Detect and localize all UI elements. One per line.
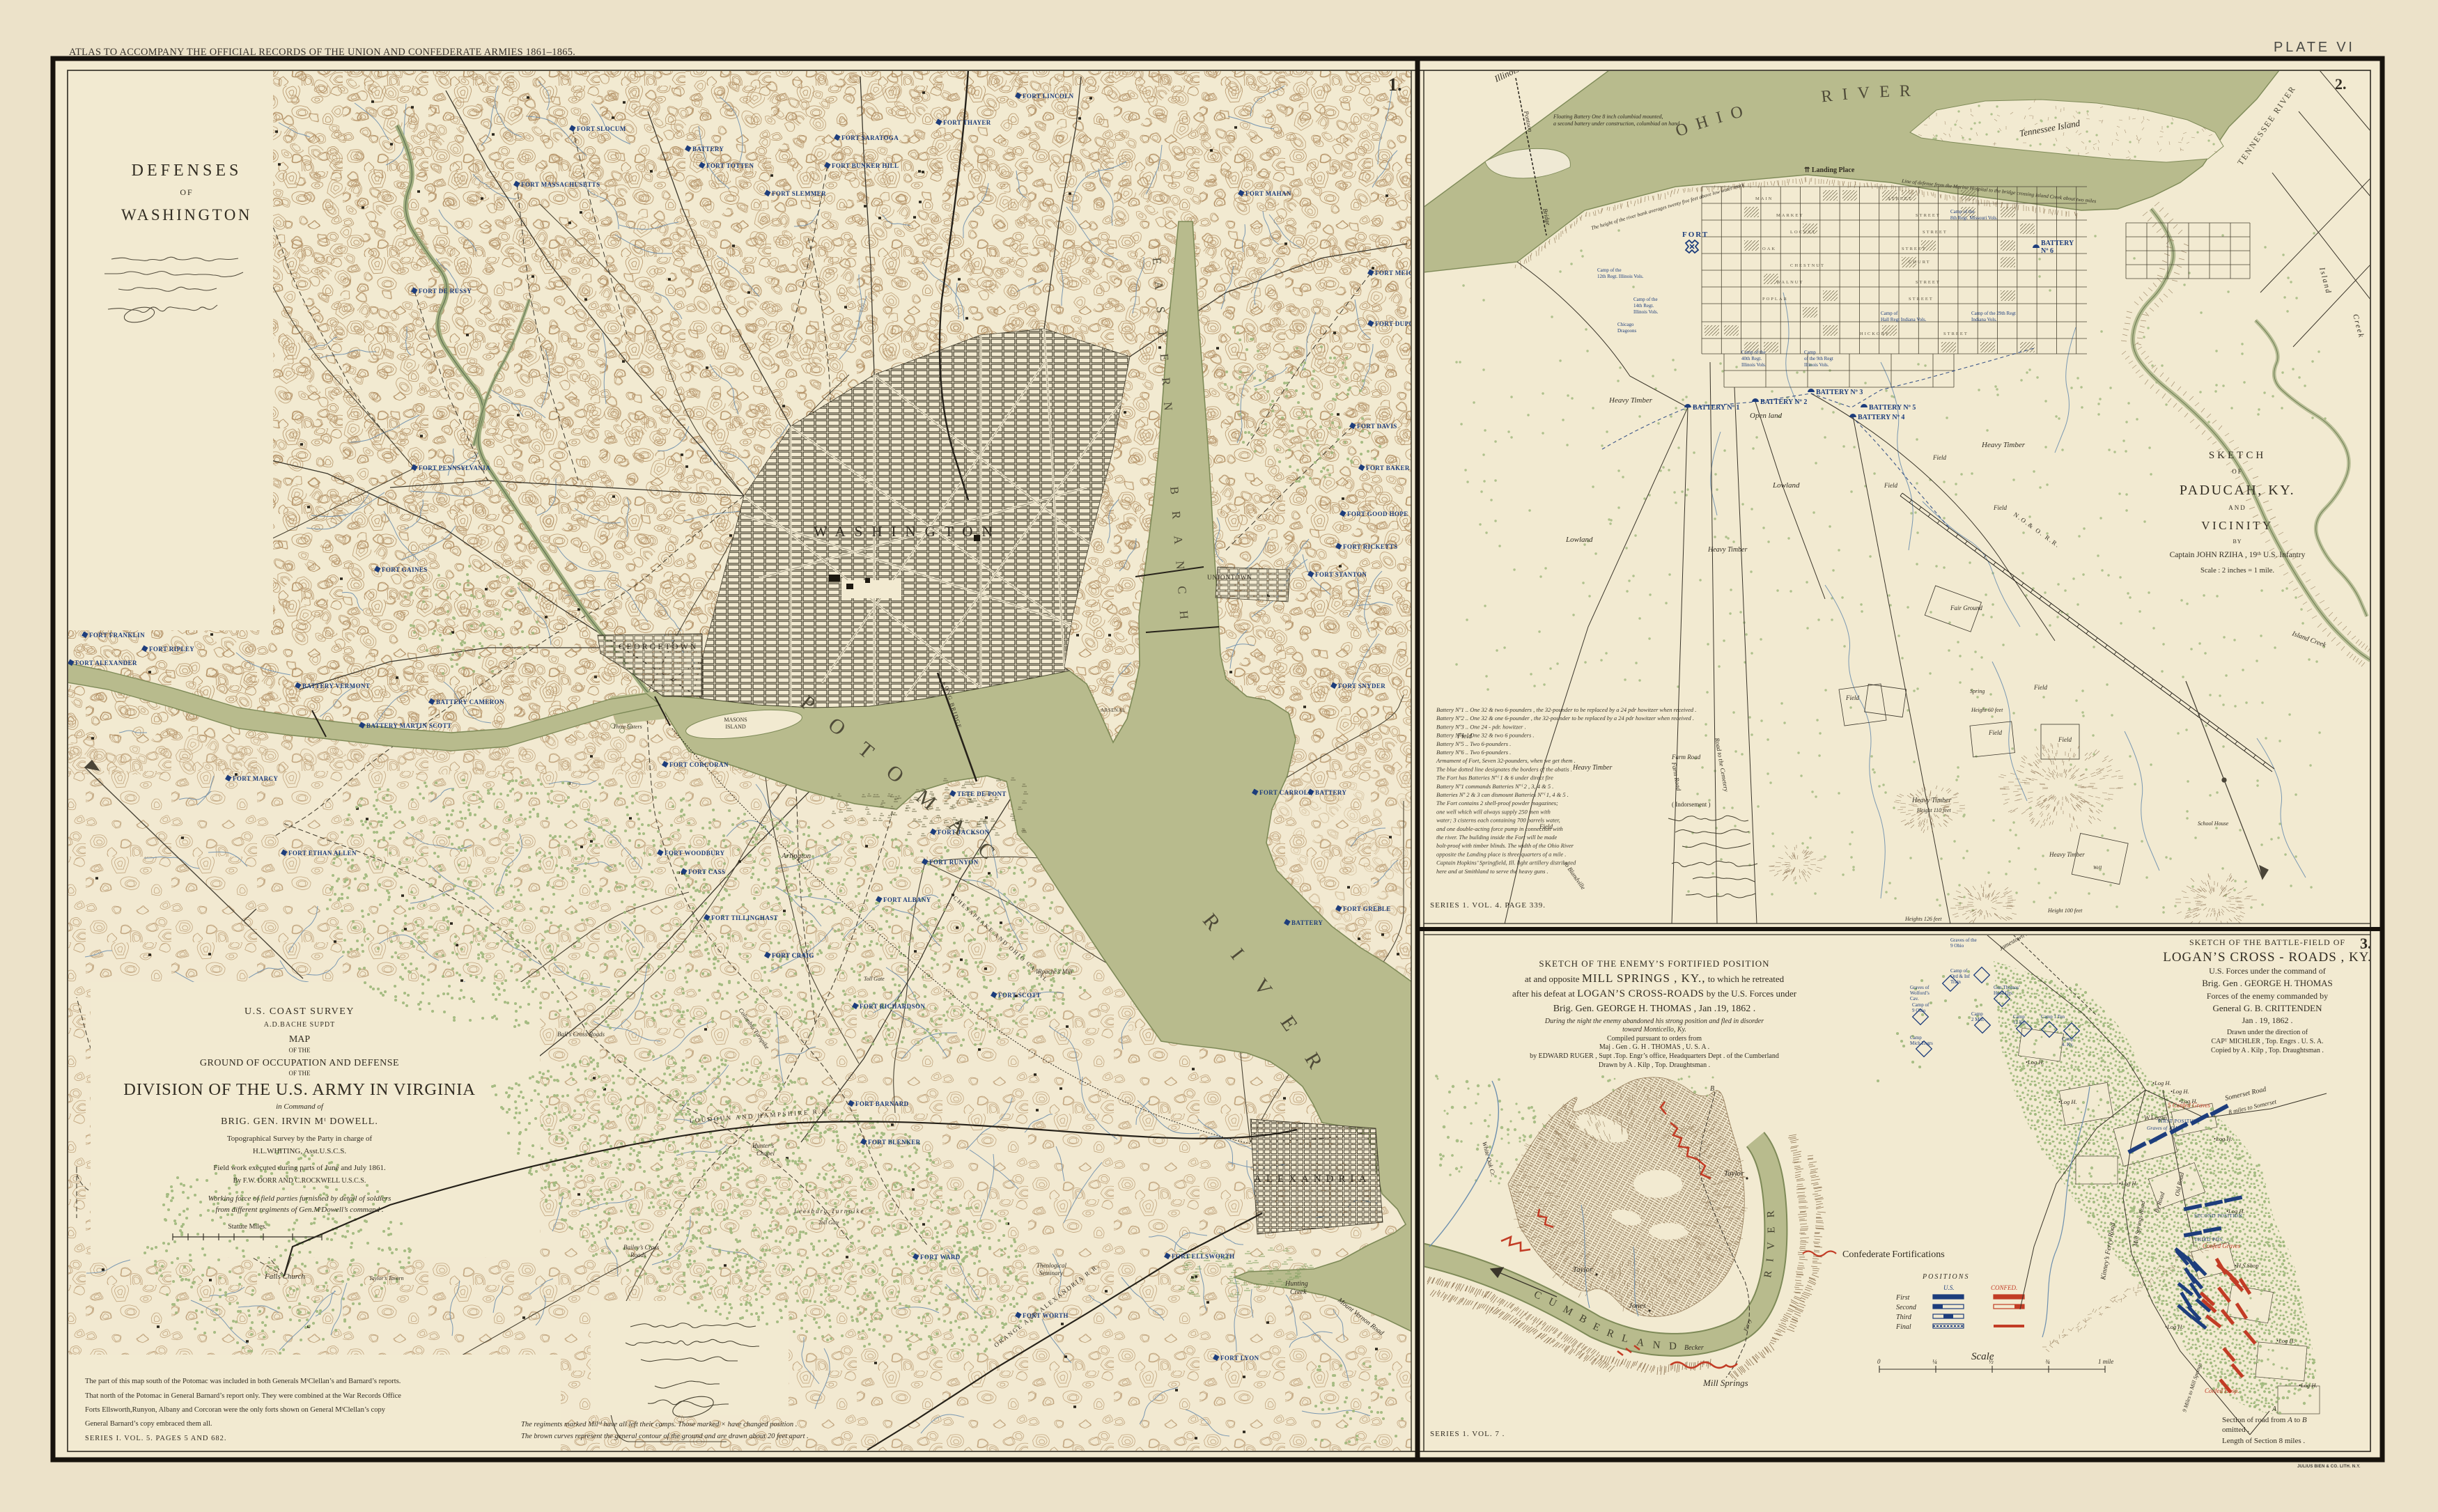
svg-text:Height 110 feet: Height 110 feet bbox=[1916, 807, 1952, 813]
svg-text:FORT DE RUSSY: FORT DE RUSSY bbox=[419, 288, 472, 295]
svg-text:A: A bbox=[2272, 1405, 2277, 1413]
svg-text:Camp 1 Ten: Camp 1 Ten bbox=[2041, 1014, 2065, 1020]
svg-text:Ball’s Cross Roads: Ball’s Cross Roads bbox=[557, 1031, 605, 1038]
svg-text:By F.W. DORR AND C.ROCKWELL U.: By F.W. DORR AND C.ROCKWELL U.S.C.S. bbox=[233, 1177, 366, 1185]
svg-text:5 Confed Graves: 5 Confed Graves bbox=[2168, 1102, 2210, 1109]
svg-text:from different regiments of Ge: from different regiments of Gen.MᵗDowell… bbox=[215, 1206, 383, 1214]
svg-text:FORT RICKETTS: FORT RICKETTS bbox=[1343, 543, 1398, 550]
svg-text:First: First bbox=[1895, 1294, 1910, 1302]
svg-text:Camp of: Camp of bbox=[1881, 311, 1898, 316]
svg-text:FORT BUNKER HILL: FORT BUNKER HILL bbox=[832, 162, 899, 169]
svg-text:Field: Field bbox=[1845, 694, 1859, 701]
svg-text:FORT THAYER: FORT THAYER bbox=[943, 119, 991, 126]
svg-text:Battery Nº4 .. One 32 & two 6: Battery Nº4 .. One 32 & two 6 pounders . bbox=[1436, 732, 1535, 739]
svg-text:FORT ELLSWORTH: FORT ELLSWORTH bbox=[1172, 1253, 1235, 1260]
svg-text:Third: Third bbox=[1896, 1314, 1912, 1321]
svg-text:COURT: COURT bbox=[1909, 260, 1931, 265]
svg-text:SKETCH: SKETCH bbox=[2209, 450, 2266, 461]
svg-text:40th Regt.: 40th Regt. bbox=[1741, 356, 1762, 361]
svg-text:Battery Nº3 .. One 24 - pdr.: Battery Nº3 .. One 24 - pdr. howitzer . bbox=[1436, 723, 1526, 730]
svg-text:Copied by A . Kilp , Top. Drau: Copied by A . Kilp , Top. Draughtsman . bbox=[2211, 1047, 2324, 1054]
svg-text:BATTERY: BATTERY bbox=[1315, 789, 1346, 796]
svg-text:Heights 126 feet: Heights 126 feet bbox=[1904, 916, 1942, 922]
svg-text:•Log H.: •Log H. bbox=[2214, 1135, 2233, 1142]
svg-text:During the night the enemy aba: During the night the enemy abandoned his… bbox=[1544, 1018, 1764, 1025]
svg-text:Jones: Jones bbox=[1629, 1302, 1646, 1310]
svg-text:Arlington: Arlington bbox=[781, 852, 812, 860]
svg-text:DEFENSES: DEFENSES bbox=[132, 162, 242, 180]
svg-text:Wolford’s: Wolford’s bbox=[1910, 990, 1930, 996]
svg-text:ARSENAL: ARSENAL bbox=[1101, 708, 1126, 713]
svg-text:Batteries Nº 2 & 3 can dismoun: Batteries Nº 2 & 3 can dismount Batterie… bbox=[1436, 791, 1569, 798]
svg-text:BATTERY MARTIN SCOTT: BATTERY MARTIN SCOTT bbox=[366, 722, 451, 729]
svg-text:TETE DE PONT: TETE DE PONT bbox=[957, 790, 1007, 797]
svg-text:Heavy Timber: Heavy Timber bbox=[1608, 396, 1653, 405]
svg-text:LOGAN’S CROSS - ROADS , KY.: LOGAN’S CROSS - ROADS , KY. bbox=[2163, 950, 2372, 965]
svg-text:Becker: Becker bbox=[1684, 1344, 1704, 1352]
svg-text:Farm Road: Farm Road bbox=[1671, 754, 1701, 761]
svg-text:The Fort has Batteries Nº⁽ 1 &: The Fort has Batteries Nº⁽ 1 & 6 under d… bbox=[1436, 774, 1553, 781]
svg-text:Section of road from A to B: Section of road from A to B bbox=[2222, 1416, 2307, 1424]
svg-text:Camp of the 29th Regt: Camp of the 29th Regt bbox=[1971, 311, 2016, 316]
svg-text:BATTERY Nº 1: BATTERY Nº 1 bbox=[1693, 404, 1739, 412]
svg-text:⇈ Landing Place: ⇈ Landing Place bbox=[1804, 166, 1855, 174]
svg-text:FORT LINCOLN: FORT LINCOLN bbox=[1023, 93, 1074, 100]
svg-text:Battery Nº1 .. One 32 & two 6-: Battery Nº1 .. One 32 & two 6-pounders ,… bbox=[1436, 706, 1696, 713]
svg-text:Confed Hosp.: Confed Hosp. bbox=[2205, 1387, 2239, 1394]
svg-text:GROUND OF OCCUPATION AND DEFEN: GROUND OF OCCUPATION AND DEFENSE bbox=[200, 1058, 399, 1068]
svg-text:Working force of field parties: Working force of field parties furnished… bbox=[208, 1194, 391, 1203]
svg-text:4. Ky.: 4. Ky. bbox=[2062, 1042, 2074, 1047]
svg-text:Compiled pursuant to orders fr: Compiled pursuant to orders from bbox=[1607, 1035, 1702, 1043]
svg-text:by EDWARD RUGER , Supt .Top. E: by EDWARD RUGER , Supt .Top. Engr’s offi… bbox=[1530, 1052, 1779, 1060]
svg-text:Jan . 19, 1862 .: Jan . 19, 1862 . bbox=[2242, 1015, 2293, 1025]
svg-text:FORT ALEXANDER: FORT ALEXANDER bbox=[75, 660, 137, 667]
svg-text:FORT ALBANY: FORT ALBANY bbox=[883, 896, 931, 903]
svg-text:Toll Gate: Toll Gate bbox=[864, 976, 885, 982]
svg-text:0: 0 bbox=[1877, 1358, 1881, 1365]
svg-text:U.S. COAST SURVEY: U.S. COAST SURVEY bbox=[244, 1006, 355, 1017]
svg-text:Camp of: Camp of bbox=[1912, 1002, 1930, 1008]
svg-text:SKETCH OF THE ENEMY’S FORTIFIE: SKETCH OF THE ENEMY’S FORTIFIED POSITION bbox=[1539, 958, 1769, 969]
svg-text:THIRD POS.: THIRD POS. bbox=[2194, 1237, 2224, 1242]
svg-text:Heavy Timber: Heavy Timber bbox=[1572, 764, 1612, 772]
svg-text:Graves of: Graves of bbox=[1910, 985, 1930, 990]
svg-text:BATTERY Nº 5: BATTERY Nº 5 bbox=[1869, 404, 1916, 412]
svg-text:The part of this map south of: The part of this map south of the Potoma… bbox=[85, 1378, 401, 1385]
svg-text:¾: ¾ bbox=[2045, 1358, 2050, 1365]
svg-text:SKETCH OF THE BATTLE-FIELD OF: SKETCH OF THE BATTLE-FIELD OF bbox=[2189, 937, 2345, 947]
svg-text:POPLAR: POPLAR bbox=[1762, 297, 1788, 302]
svg-text:•Log H.: •Log H. bbox=[2165, 1323, 2184, 1330]
svg-text:•Log H.: •Log H. bbox=[2026, 1059, 2044, 1066]
svg-text:FORT BARNARD: FORT BARNARD bbox=[855, 1100, 909, 1107]
svg-text:POSITIONS: POSITIONS bbox=[1922, 1273, 1969, 1281]
svg-text:Brig. Gen . GEORGE H. THOMAS: Brig. Gen . GEORGE H. THOMAS bbox=[2202, 978, 2333, 988]
svg-text:FORT TOTTEN: FORT TOTTEN bbox=[706, 162, 754, 169]
svg-text:STREET: STREET bbox=[1923, 230, 1948, 235]
svg-text:Fair Ground: Fair Ground bbox=[1950, 605, 1982, 611]
svg-text:Confed Graves: Confed Graves bbox=[2203, 1242, 2241, 1249]
svg-text:UNIONTOWN: UNIONTOWN bbox=[1207, 574, 1252, 581]
svg-text:BATTERY CAMERON: BATTERY CAMERON bbox=[436, 699, 504, 706]
svg-text:FORT RICHARDSON: FORT RICHARDSON bbox=[860, 1003, 925, 1010]
svg-text:WASHINGTON: WASHINGTON bbox=[121, 206, 252, 224]
svg-text:FORT CRAIG: FORT CRAIG bbox=[772, 952, 814, 959]
svg-text:Falls Church: Falls Church bbox=[264, 1272, 305, 1281]
svg-text:Theological: Theological bbox=[1036, 1262, 1066, 1269]
svg-text:Field: Field bbox=[1932, 454, 1946, 461]
svg-text:BRIG. GEN. IRVIN M⁢ᵗ DOWELL.: BRIG. GEN. IRVIN M⁢ᵗ DOWELL. bbox=[221, 1116, 378, 1127]
svg-text:Ord & Inf: Ord & Inf bbox=[1950, 974, 1971, 979]
svg-text:FORT FRANKLIN: FORT FRANKLIN bbox=[89, 632, 145, 639]
svg-text:Taylor: Taylor bbox=[1573, 1265, 1593, 1274]
svg-text:Well: Well bbox=[2093, 865, 2102, 871]
svg-text:SERIES I. VOL. 5. PAGES 5 AND: SERIES I. VOL. 5. PAGES 5 AND 682. bbox=[85, 1435, 226, 1442]
svg-text:MASONS: MASONS bbox=[724, 717, 747, 723]
svg-text:OAK: OAK bbox=[1762, 247, 1776, 251]
svg-text:FORT BLENKER: FORT BLENKER bbox=[868, 1139, 921, 1146]
svg-text:and one double-acting force pu: and one double-acting force pump in conn… bbox=[1436, 825, 1563, 832]
svg-text:omitted .: omitted . bbox=[2222, 1426, 2249, 1434]
svg-text:FORT GOOD HOPE: FORT GOOD HOPE bbox=[1347, 511, 1408, 517]
svg-text:FORT DAVIS: FORT DAVIS bbox=[1357, 423, 1397, 430]
svg-text:Battery Nº5 .. Two 6-pounders: Battery Nº5 .. Two 6-pounders . bbox=[1436, 740, 1511, 747]
svg-text:FORT SLEMMER: FORT SLEMMER bbox=[772, 190, 826, 197]
svg-text:Dragoons: Dragoons bbox=[1617, 328, 1636, 334]
svg-text:CAPᵀ MICHLER , Top. Engrs . U.: CAPᵀ MICHLER , Top. Engrs . U. S. A. bbox=[2211, 1038, 2323, 1045]
svg-text:one well which will always sup: one well which will always supply 250 me… bbox=[1436, 808, 1551, 815]
svg-text:OF: OF bbox=[2232, 468, 2243, 475]
svg-text:PLATE VI: PLATE VI bbox=[2274, 40, 2355, 55]
svg-text:AND: AND bbox=[2228, 504, 2246, 511]
svg-text:PADUCAH, KY.: PADUCAH, KY. bbox=[2180, 483, 2295, 498]
svg-text:FORT BAKER: FORT BAKER bbox=[1366, 465, 1410, 471]
svg-text:Camp of the: Camp of the bbox=[1950, 209, 1975, 215]
svg-text:GEORGETOWN: GEORGETOWN bbox=[619, 641, 698, 651]
svg-text:Train: Train bbox=[1950, 979, 1961, 985]
svg-text:Forts Ellsworth,Runyon, Albany: Forts Ellsworth,Runyon, Albany and Corco… bbox=[85, 1406, 386, 1414]
svg-text:Graves of 10 Ind.: Graves of 10 Ind. bbox=[2147, 1125, 2184, 1131]
svg-text:Heavy Timber: Heavy Timber bbox=[2049, 851, 2085, 858]
svg-text:BY: BY bbox=[2233, 538, 2242, 545]
svg-text:ISLAND: ISLAND bbox=[725, 724, 746, 730]
svg-text:Chicago: Chicago bbox=[1617, 322, 1634, 327]
svg-text:MAP: MAP bbox=[289, 1034, 311, 1045]
svg-text:Camp: Camp bbox=[1971, 1011, 1983, 1017]
svg-text:1 mile: 1 mile bbox=[2098, 1358, 2113, 1365]
svg-text:Heavy Timber: Heavy Timber bbox=[1981, 441, 2026, 449]
svg-text:Hall Regt Indiana Vols.: Hall Regt Indiana Vols. bbox=[1881, 317, 1927, 322]
svg-text:School House: School House bbox=[2198, 820, 2229, 827]
svg-text:Spring: Spring bbox=[1970, 688, 1985, 694]
svg-text:VICINITY: VICINITY bbox=[2201, 519, 2274, 532]
svg-text:2.: 2. bbox=[2335, 75, 2347, 93]
svg-text:Leesburg Turnpike: Leesburg Turnpike bbox=[793, 1208, 864, 1215]
svg-text:BATTERY Nº 3: BATTERY Nº 3 bbox=[1816, 389, 1863, 396]
svg-text:FORT CASS: FORT CASS bbox=[688, 868, 725, 875]
svg-text:BATTERY: BATTERY bbox=[2041, 240, 2074, 247]
svg-text:Battery Nº1 commands Batteries: Battery Nº1 commands Batteries Nº⁽ 2 , 3… bbox=[1436, 783, 1553, 790]
svg-text:½: ½ bbox=[1989, 1358, 1994, 1365]
svg-text:Open land: Open land bbox=[1750, 412, 1783, 420]
svg-text:FORT RUNYON: FORT RUNYON bbox=[929, 859, 979, 866]
svg-text:14th Regt.: 14th Regt. bbox=[1633, 303, 1654, 309]
svg-text:Lowland: Lowland bbox=[1565, 536, 1593, 544]
svg-text:H.L.WHITING, Asst.U.S.C.S.: H.L.WHITING, Asst.U.S.C.S. bbox=[253, 1147, 346, 1155]
svg-text:FIRST POSITION: FIRST POSITION bbox=[2158, 1119, 2200, 1124]
svg-text:Illinois Vols.: Illinois Vols. bbox=[1741, 362, 1767, 368]
svg-text:FORT TILLINGHAST: FORT TILLINGHAST bbox=[711, 914, 778, 921]
svg-text:BATTERY: BATTERY bbox=[692, 146, 724, 153]
svg-text:•Log H.: •Log H. bbox=[2171, 1088, 2189, 1095]
svg-text:Topographical Survey by the Pa: Topographical Survey by the Party in cha… bbox=[227, 1135, 373, 1143]
svg-text:Captain Hopkins’ Springfield,: Captain Hopkins’ Springfield, Ill. light… bbox=[1436, 859, 1576, 866]
svg-text:General G. B. CRITTENDEN: General G. B. CRITTENDEN bbox=[2212, 1003, 2322, 1013]
svg-text:Length of Section 8 miles .: Length of Section 8 miles . bbox=[2222, 1437, 2305, 1445]
svg-text:FORT CORCORAN: FORT CORCORAN bbox=[669, 761, 729, 768]
svg-text:WASHINGTON: WASHINGTON bbox=[814, 523, 1002, 540]
svg-text:Floating Battery One 8 inch c: Floating Battery One 8 inch columbiad mo… bbox=[1553, 114, 1663, 120]
svg-text:OF: OF bbox=[180, 187, 193, 197]
svg-text:Bailey’s Cross: Bailey’s Cross bbox=[623, 1244, 660, 1251]
svg-text:Brig. Gen. GEORGE H. THOMAS ,: Brig. Gen. GEORGE H. THOMAS , Jan .19, 1… bbox=[1553, 1004, 1756, 1014]
svg-text:FORT GREBLE: FORT GREBLE bbox=[1343, 905, 1391, 912]
svg-text:Gen.Thomas’: Gen.Thomas’ bbox=[1994, 985, 2020, 990]
svg-text:a second battery under constru: a second battery under construction, col… bbox=[1553, 120, 1680, 127]
svg-text:LOCUST: LOCUST bbox=[1790, 230, 1816, 235]
svg-text:BATTERY VERMONT: BATTERY VERMONT bbox=[302, 683, 370, 689]
svg-text:The Fort contains 2 shell-proo: The Fort contains 2 shell-proof powder m… bbox=[1436, 800, 1558, 806]
svg-text:¼: ¼ bbox=[1932, 1358, 1937, 1365]
svg-text:ALEXANDRIA: ALEXANDRIA bbox=[1254, 1174, 1371, 1185]
svg-text:Taylor’s Tavern: Taylor’s Tavern bbox=[369, 1275, 404, 1281]
svg-text:The regiments marked Milᵗᵈ hav: The regiments marked Milᵗᵈ have all left… bbox=[521, 1421, 797, 1428]
svg-text:•Log H.: •Log H. bbox=[2119, 1180, 2138, 1187]
svg-text:Camp: Camp bbox=[1910, 1035, 1922, 1041]
svg-text:Forces of the enemy commanded: Forces of the enemy commanded by bbox=[2207, 991, 2328, 1001]
svg-text:The brown curves represent the: The brown curves represent the general c… bbox=[521, 1433, 809, 1440]
svg-text:12th Regt. Illinois Vols.: 12th Regt. Illinois Vols. bbox=[1597, 274, 1644, 279]
svg-text:after his defeat at LOGAN’S CR: after his defeat at LOGAN’S CROSS-ROADS … bbox=[1512, 988, 1797, 999]
svg-text:Camp: Camp bbox=[2062, 1036, 2074, 1042]
svg-text:Captain JOHN RZIHA , 19ᵗʰ U.S.: Captain JOHN RZIHA , 19ᵗʰ U.S. Infantry bbox=[2170, 551, 2306, 559]
svg-text:Field: Field bbox=[1993, 504, 2007, 511]
svg-text:CONFED.: CONFED. bbox=[1991, 1284, 2017, 1291]
svg-text:Field: Field bbox=[1884, 482, 1897, 489]
svg-text:FORT RIPLEY: FORT RIPLEY bbox=[149, 646, 194, 653]
svg-text:FORT: FORT bbox=[1682, 231, 1709, 239]
svg-text:FORT SLOCUM: FORT SLOCUM bbox=[577, 125, 626, 132]
svg-text:FORT WOODBURY: FORT WOODBURY bbox=[665, 850, 725, 857]
svg-text:Hunting: Hunting bbox=[1284, 1280, 1308, 1288]
svg-text:OF THE: OF THE bbox=[288, 1047, 311, 1054]
svg-text:B: B bbox=[1710, 1085, 1714, 1093]
svg-text:STREET: STREET bbox=[1916, 213, 1941, 218]
svg-text:Graves of the: Graves of the bbox=[1950, 937, 1977, 943]
svg-text:Camp of the: Camp of the bbox=[1741, 350, 1766, 355]
svg-text:bolt-proof with timber blinds.: bolt-proof with timber blinds. The width… bbox=[1436, 842, 1574, 849]
svg-text:•Log H.: •Log H. bbox=[2299, 1382, 2317, 1389]
svg-text:STREET: STREET bbox=[1909, 297, 1934, 302]
svg-text:Camp of: Camp of bbox=[1950, 968, 1968, 974]
svg-text:Cav.: Cav. bbox=[1910, 996, 1919, 1001]
svg-text:1.: 1. bbox=[1388, 75, 1402, 95]
svg-text:Roads: Roads bbox=[630, 1252, 646, 1258]
svg-text:SERIES 1. VOL. 7 .: SERIES 1. VOL. 7 . bbox=[1430, 1430, 1505, 1438]
svg-text:of the 9th Regt: of the 9th Regt bbox=[1804, 356, 1833, 361]
svg-text:U.S. Forces under the command: U.S. Forces under the command of bbox=[2209, 966, 2326, 976]
svg-text:STREET: STREET bbox=[1916, 280, 1941, 285]
svg-text:Battery Nº6 .. Two 6-pounder: Battery Nº6 .. Two 6-pounders . bbox=[1436, 749, 1511, 756]
svg-text:here and at Smithland to serv: here and at Smithland to serve the heavy… bbox=[1436, 868, 1548, 875]
svg-text:Drawn under the direction of: Drawn under the direction of bbox=[2227, 1029, 2308, 1036]
svg-text:Creek: Creek bbox=[1290, 1288, 1307, 1296]
svg-text:Armament of Fort, Seven 32-pou: Armament of Fort, Seven 32-pounders, whe… bbox=[1436, 757, 1576, 764]
svg-text:ATLAS TO ACCOMPANY THE OFFICIA: ATLAS TO ACCOMPANY THE OFFICIAL RECORDS … bbox=[69, 47, 575, 58]
svg-text:STREET: STREET bbox=[1888, 196, 1913, 201]
svg-text:Field work executed during par: Field work executed during parts of June… bbox=[213, 1164, 386, 1172]
svg-text:Mill Springs: Mill Springs bbox=[1702, 1378, 1748, 1388]
svg-text:Seminary: Seminary bbox=[1039, 1270, 1063, 1277]
svg-text:Lowland: Lowland bbox=[1772, 481, 1800, 490]
svg-text:Toll Gate: Toll Gate bbox=[818, 1219, 839, 1226]
svg-text:SECOND POSITION: SECOND POSITION bbox=[2194, 1213, 2242, 1219]
svg-text:FORT SCOTT: FORT SCOTT bbox=[998, 992, 1041, 999]
svg-text:BATTERY Nº 2: BATTERY Nº 2 bbox=[1760, 398, 1807, 406]
svg-text:water; 3 cisterns each contain: water; 3 cisterns each containing 700 ba… bbox=[1436, 817, 1560, 824]
svg-text:9 Ohio: 9 Ohio bbox=[1950, 943, 1964, 949]
svg-text:The blue dotted line designate: The blue dotted line designates the bord… bbox=[1436, 765, 1572, 772]
svg-text:Final: Final bbox=[1895, 1323, 1911, 1331]
svg-text:2 Min.: 2 Min. bbox=[1971, 1017, 1985, 1022]
svg-text:BATTERY: BATTERY bbox=[1291, 919, 1323, 926]
svg-text:CHESTNUT: CHESTNUT bbox=[1790, 263, 1825, 268]
svg-text:FORT CARROLL: FORT CARROLL bbox=[1259, 789, 1313, 796]
svg-text:FORT SARATOGA: FORT SARATOGA bbox=[841, 134, 899, 141]
svg-text:U.S.: U.S. bbox=[1943, 1284, 1955, 1291]
svg-text:Head Qrs.: Head Qrs. bbox=[1994, 990, 2014, 996]
svg-text:FORT MAHAN: FORT MAHAN bbox=[1245, 190, 1291, 197]
svg-text:Camp: Camp bbox=[2013, 1014, 2025, 1020]
svg-text:at and opposite MILL SPRINGS: at and opposite MILL SPRINGS , KY., to w… bbox=[1525, 972, 1785, 985]
svg-text:Statute Miles.: Statute Miles. bbox=[228, 1223, 267, 1231]
svg-text:MAIN: MAIN bbox=[1755, 196, 1773, 201]
svg-text:FORT PENNSYLVANIA: FORT PENNSYLVANIA bbox=[419, 465, 490, 471]
svg-text:Camp: Camp bbox=[1804, 350, 1816, 355]
svg-text:FORT WARD: FORT WARD bbox=[920, 1254, 961, 1261]
svg-text:WALNUT: WALNUT bbox=[1776, 280, 1803, 285]
svg-text:STREET: STREET bbox=[1943, 332, 1969, 336]
svg-text:HICKORY: HICKORY bbox=[1860, 332, 1890, 336]
svg-text:12 Ky.: 12 Ky. bbox=[2013, 1020, 2026, 1025]
svg-text:•Log H.: •Log H. bbox=[2058, 1098, 2077, 1105]
svg-text:Maj . Gen . G. H . THOMAS , U.: Maj . Gen . G. H . THOMAS , U. S. A . bbox=[1599, 1043, 1709, 1051]
svg-text:Camp of the: Camp of the bbox=[1597, 267, 1622, 273]
svg-text:Second: Second bbox=[1896, 1304, 1917, 1311]
svg-text:Confederate Fortifications: Confederate Fortifications bbox=[1842, 1249, 1945, 1260]
svg-text:8th Regt. Missouri Vols.: 8th Regt. Missouri Vols. bbox=[1950, 215, 1998, 221]
svg-text:A.D.BACHE SUPDT: A.D.BACHE SUPDT bbox=[264, 1021, 336, 1029]
svg-text:•Log H.: •Log H. bbox=[2276, 1337, 2295, 1344]
svg-text:FORT MASSACHUSETTS: FORT MASSACHUSETTS bbox=[521, 181, 600, 188]
svg-text:General Barnard’s copy embrace: General Barnard’s copy embraced them all… bbox=[85, 1420, 212, 1428]
svg-text:Illinois Vols.: Illinois Vols. bbox=[1804, 362, 1829, 368]
svg-text:toward Monticello, Ky.: toward Monticello, Ky. bbox=[1622, 1026, 1686, 1034]
svg-text:Indiana Vols.: Indiana Vols. bbox=[1971, 317, 1997, 322]
svg-text:Heavy Timber: Heavy Timber bbox=[1707, 546, 1747, 554]
svg-text:SERIES 1. VOL. 4. PAGE 339.: SERIES 1. VOL. 4. PAGE 339. bbox=[1430, 901, 1546, 910]
svg-text:MARKET: MARKET bbox=[1776, 213, 1803, 218]
svg-text:Taylor: Taylor bbox=[1724, 1169, 1744, 1178]
svg-text:Chapel: Chapel bbox=[756, 1150, 775, 1157]
svg-text:FORT GAINES: FORT GAINES bbox=[382, 566, 428, 573]
svg-text:That north of the Potomac in G: That north of the Potomac in General Bar… bbox=[85, 1392, 401, 1400]
svg-text:Nº 6: Nº 6 bbox=[2041, 247, 2053, 255]
svg-text:DIVISION OF THE U.S. ARMY IN V: DIVISION OF THE U.S. ARMY IN VIRGINIA bbox=[123, 1080, 476, 1099]
svg-text:FORT ETHAN ALLEN: FORT ETHAN ALLEN bbox=[288, 850, 357, 857]
svg-text:Drawn by A . Kilp , Top. Drau: Drawn by A . Kilp , Top. Draughtsman . bbox=[1599, 1061, 1710, 1069]
svg-text:Height 60 feet: Height 60 feet bbox=[1971, 707, 2003, 713]
svg-text:STREET: STREET bbox=[1902, 247, 1927, 251]
svg-text:•Log H.: •Log H. bbox=[2152, 1080, 2171, 1086]
svg-text:the river. The building inside: the river. The building inside the Fort … bbox=[1436, 834, 1558, 841]
svg-text:Mich.Engrs: Mich.Engrs bbox=[1910, 1041, 1933, 1046]
svg-text:JULIUS BIEN & CO. LITH. N.Y.: JULIUS BIEN & CO. LITH. N.Y. bbox=[2297, 1465, 2361, 1469]
svg-text:Hunter’s: Hunter’s bbox=[752, 1142, 775, 1149]
svg-text:in Command of: in Command of bbox=[276, 1102, 325, 1111]
svg-text:( Indorsement ): ( Indorsement ) bbox=[1672, 801, 1710, 808]
svg-text:FORT STANTON: FORT STANTON bbox=[1315, 571, 1367, 578]
svg-text:opposite the Landing place is: opposite the Landing place is three quar… bbox=[1436, 850, 1566, 857]
svg-text:BATTERY Nº 4: BATTERY Nº 4 bbox=[1858, 414, 1904, 421]
svg-text:Field: Field bbox=[2033, 684, 2047, 691]
svg-text:Height 100 feet: Height 100 feet bbox=[2047, 907, 2083, 914]
svg-text:9 Ohio: 9 Ohio bbox=[1912, 1008, 1926, 1013]
svg-text:Field: Field bbox=[2058, 736, 2072, 743]
svg-text:FORT SNYDER: FORT SNYDER bbox=[1338, 683, 1385, 689]
svg-text:Illinois Vols.: Illinois Vols. bbox=[1633, 309, 1659, 315]
svg-text:•H.S.Shop: •H.S.Shop bbox=[2235, 1262, 2259, 1269]
svg-text:Field: Field bbox=[1988, 729, 2002, 736]
svg-text:OF THE: OF THE bbox=[288, 1070, 311, 1077]
svg-text:FORT LYON: FORT LYON bbox=[1220, 1355, 1259, 1362]
svg-text:Three Sisters: Three Sisters bbox=[613, 724, 642, 730]
svg-text:Scale : 2 inches = 1 mile.: Scale : 2 inches = 1 mile. bbox=[2200, 567, 2274, 575]
svg-text:Camp of the: Camp of the bbox=[1633, 297, 1658, 302]
svg-text:Battery Nº2 .. One 32 & one 6-: Battery Nº2 .. One 32 & one 6-pounder , … bbox=[1436, 715, 1694, 722]
svg-text:FORT MARCY: FORT MARCY bbox=[233, 775, 278, 782]
